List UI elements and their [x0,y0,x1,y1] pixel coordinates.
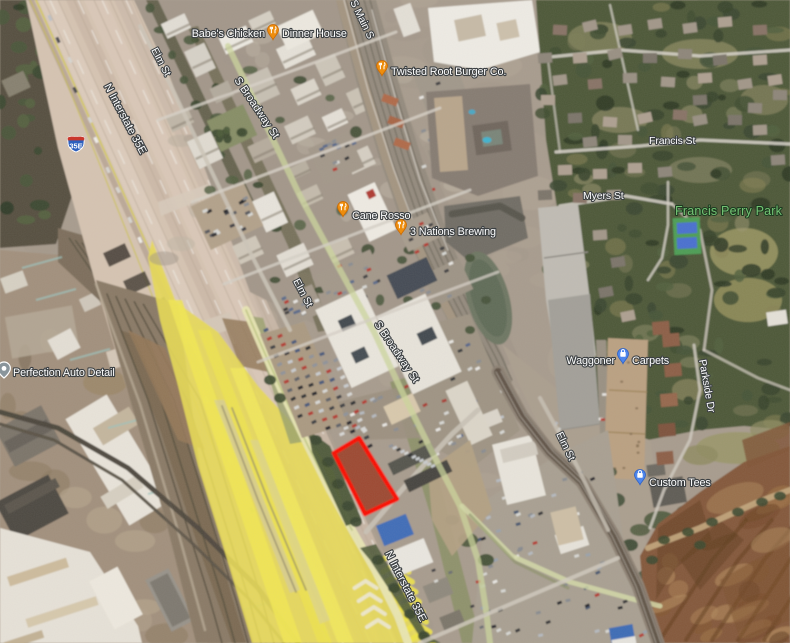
svg-text:Twisted Root Burger Co.: Twisted Root Burger Co. [391,66,506,78]
svg-text:Francis Perry Park: Francis Perry Park [675,204,783,218]
svg-text:Carpets: Carpets [632,355,670,367]
svg-text:Waggoner: Waggoner [566,355,615,367]
svg-text:35E: 35E [69,142,82,151]
svg-text:3 Nations Brewing: 3 Nations Brewing [410,226,496,238]
svg-text:Perfection Auto Detail: Perfection Auto Detail [13,367,115,379]
svg-text:Francis St: Francis St [649,135,695,147]
svg-text:Custom Tees: Custom Tees [649,477,711,489]
svg-text:Myers St: Myers St [583,190,624,202]
svg-text:Dinner House: Dinner House [282,28,347,40]
svg-text:Babe's Chicken: Babe's Chicken [192,28,265,40]
